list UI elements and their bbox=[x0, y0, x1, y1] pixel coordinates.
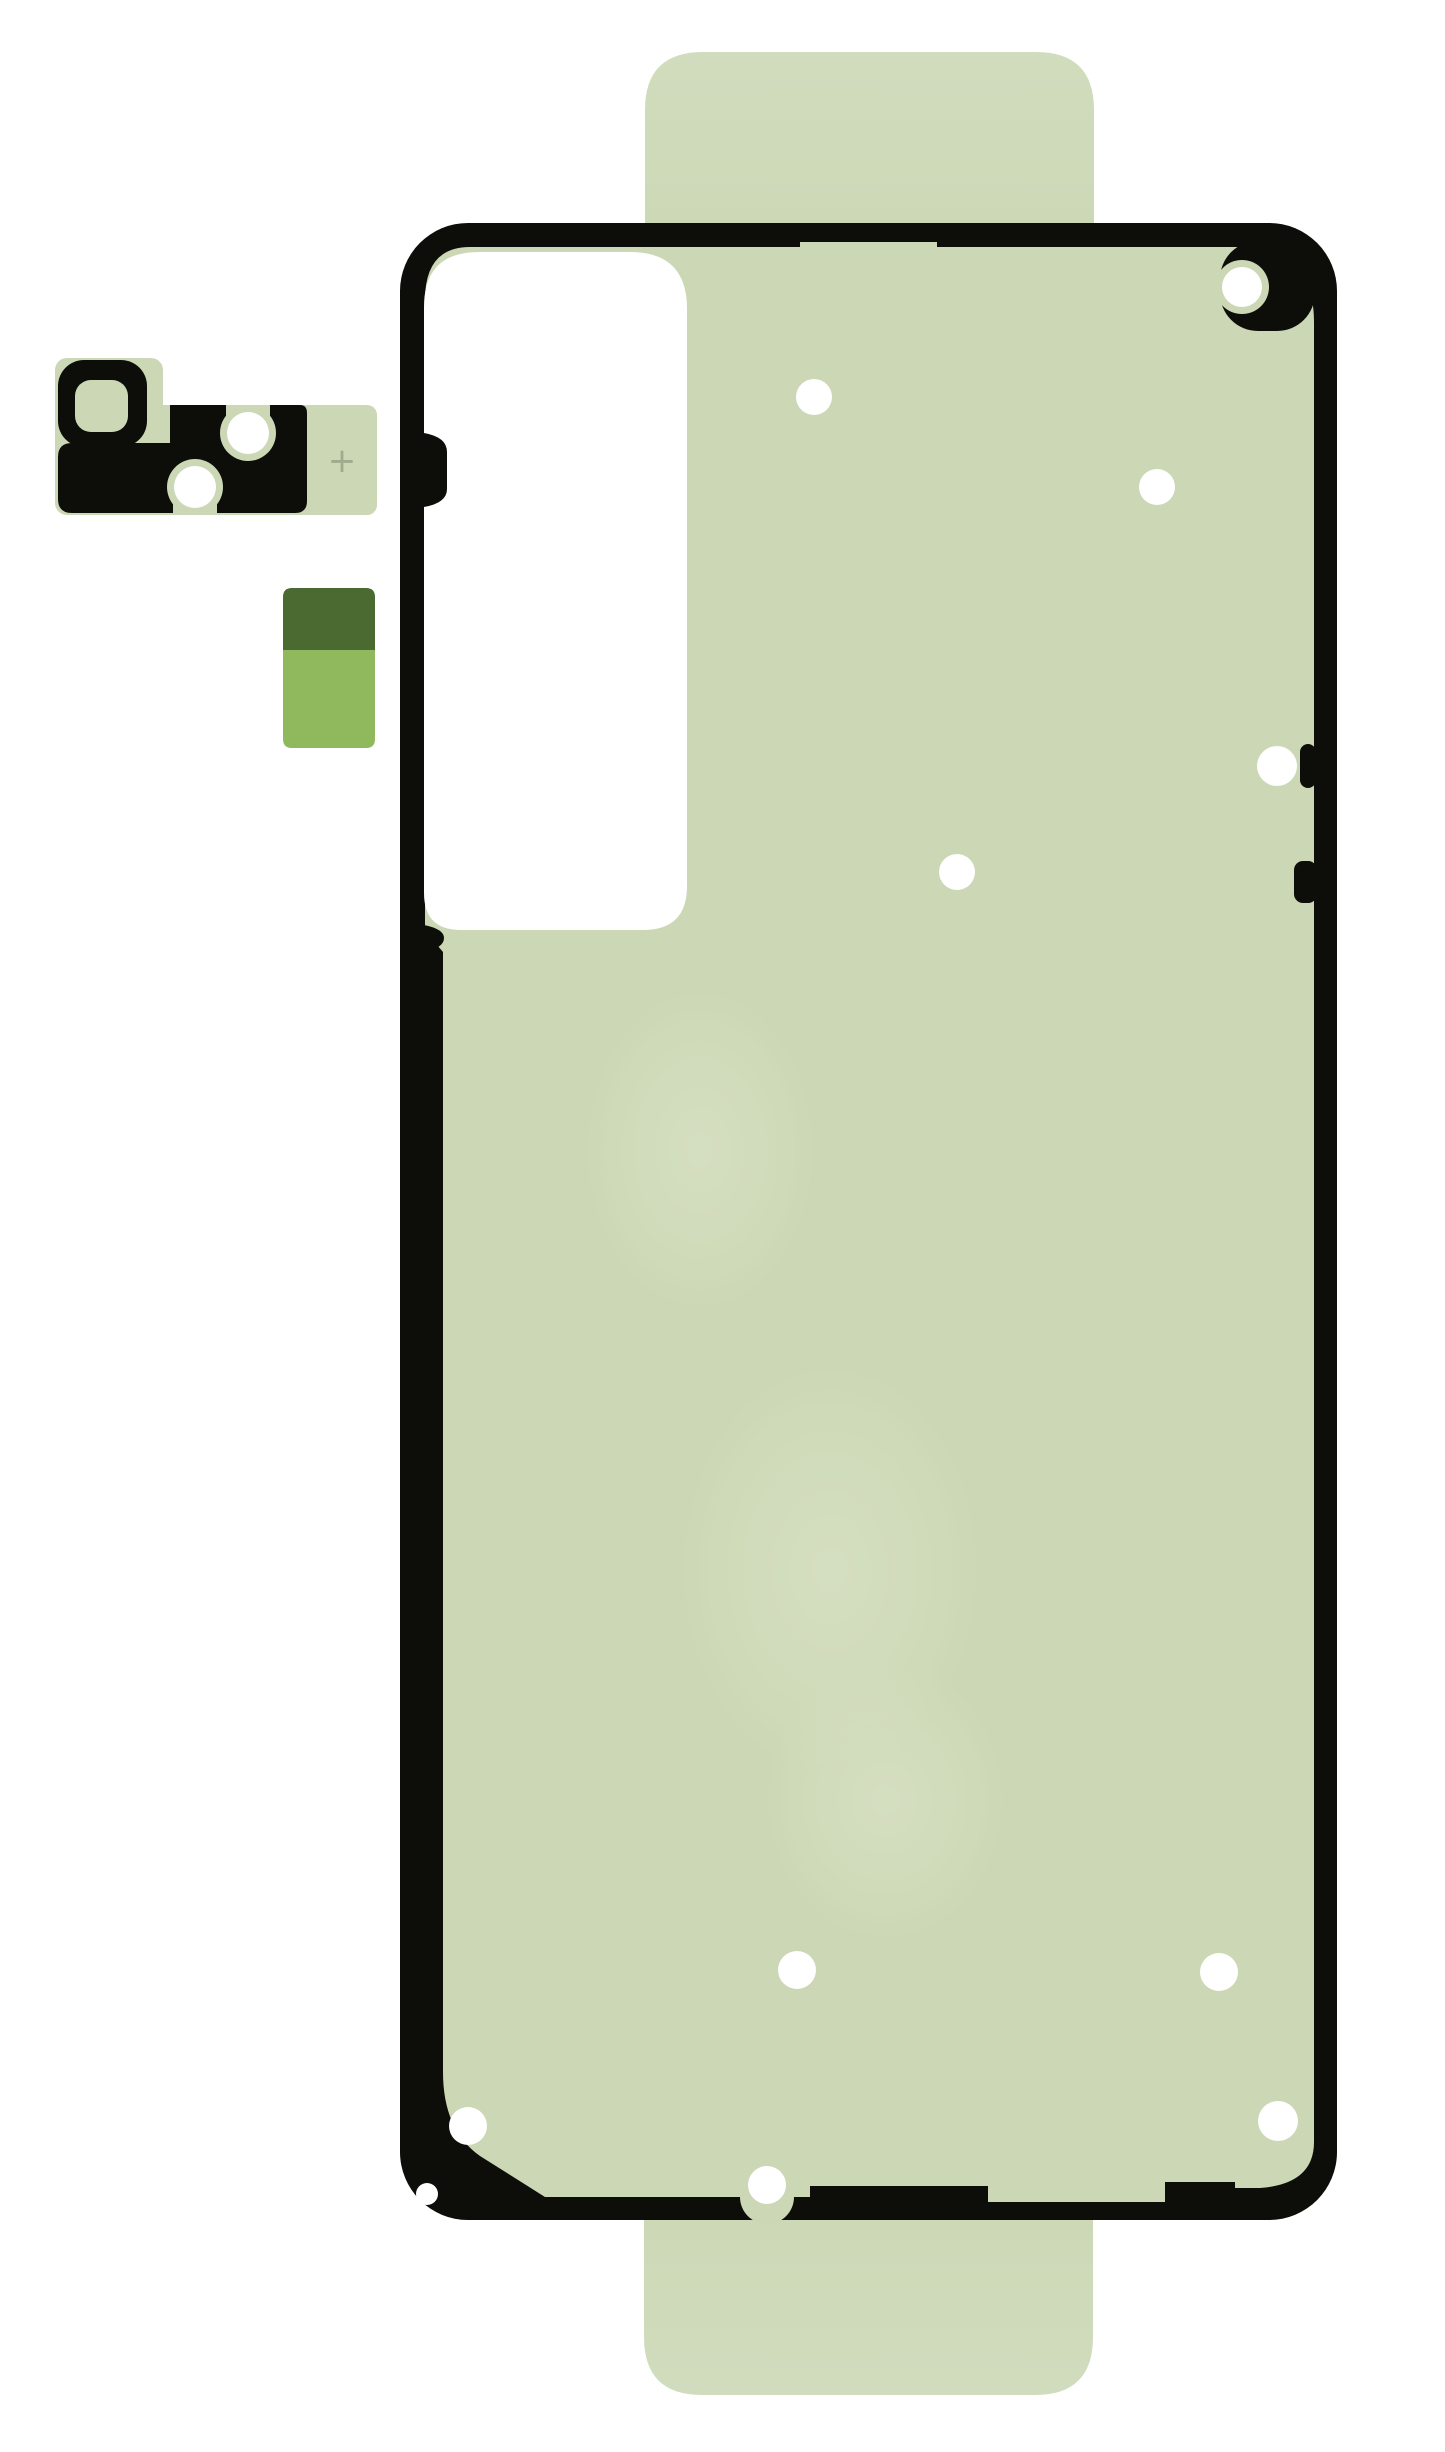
bottom-pull-tab bbox=[644, 2200, 1093, 2395]
alignment-hole bbox=[1200, 1953, 1238, 1991]
liner-sticker-top bbox=[283, 588, 375, 650]
alignment-hole bbox=[748, 2166, 786, 2204]
lens-ring-hole bbox=[75, 380, 128, 432]
texture-blob bbox=[585, 990, 815, 1310]
alignment-hole bbox=[1257, 746, 1297, 786]
alignment-hole bbox=[449, 2107, 487, 2145]
bezel-screw-hole bbox=[174, 466, 216, 508]
alignment-hole bbox=[939, 854, 975, 890]
alignment-hole bbox=[1222, 267, 1262, 307]
alignment-hole bbox=[1139, 469, 1175, 505]
alignment-hole bbox=[796, 379, 832, 415]
flash-notch bbox=[424, 433, 447, 507]
texture-blob bbox=[765, 1660, 1005, 1940]
plus-registration-mark: + bbox=[328, 441, 357, 481]
corner-nick-bottom-left bbox=[416, 2183, 438, 2205]
top-pull-tab bbox=[645, 52, 1094, 250]
liner-sticker-bottom bbox=[283, 650, 375, 748]
edge-notch-right-lower bbox=[1294, 861, 1317, 903]
product-photo: + bbox=[0, 0, 1445, 2452]
camera-cutout bbox=[424, 252, 687, 930]
alignment-hole bbox=[1258, 2101, 1298, 2141]
liner-pull-sticker bbox=[283, 588, 375, 748]
alignment-hole bbox=[778, 1951, 816, 1989]
edge-notch-right-upper bbox=[1300, 744, 1316, 788]
adhesive-sheet-illustration: + bbox=[0, 0, 1445, 2452]
bezel-screw-hole bbox=[227, 412, 269, 454]
